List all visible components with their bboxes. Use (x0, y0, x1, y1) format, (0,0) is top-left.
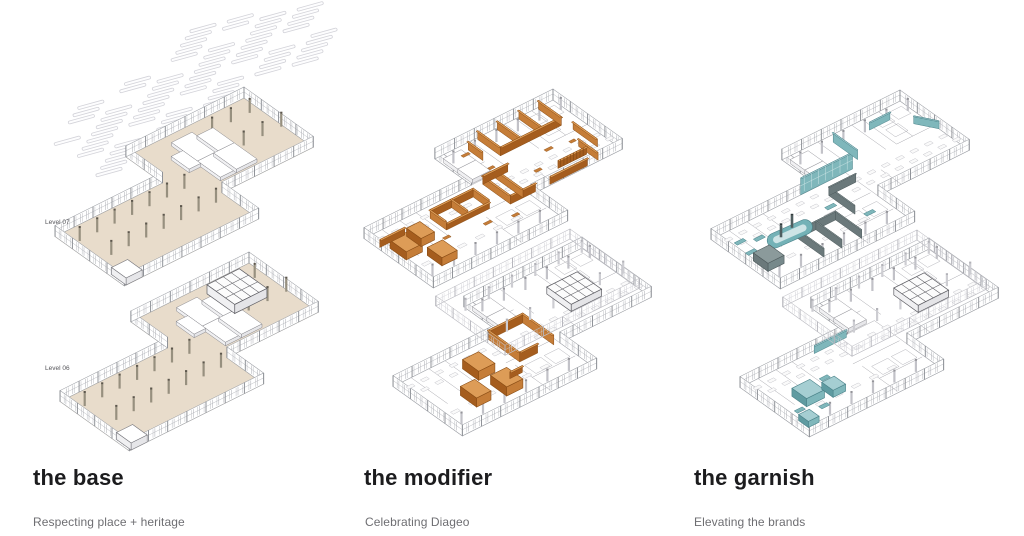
svg-text:Level 07: Level 07 (45, 219, 70, 226)
svg-text:Level 06: Level 06 (45, 365, 70, 372)
